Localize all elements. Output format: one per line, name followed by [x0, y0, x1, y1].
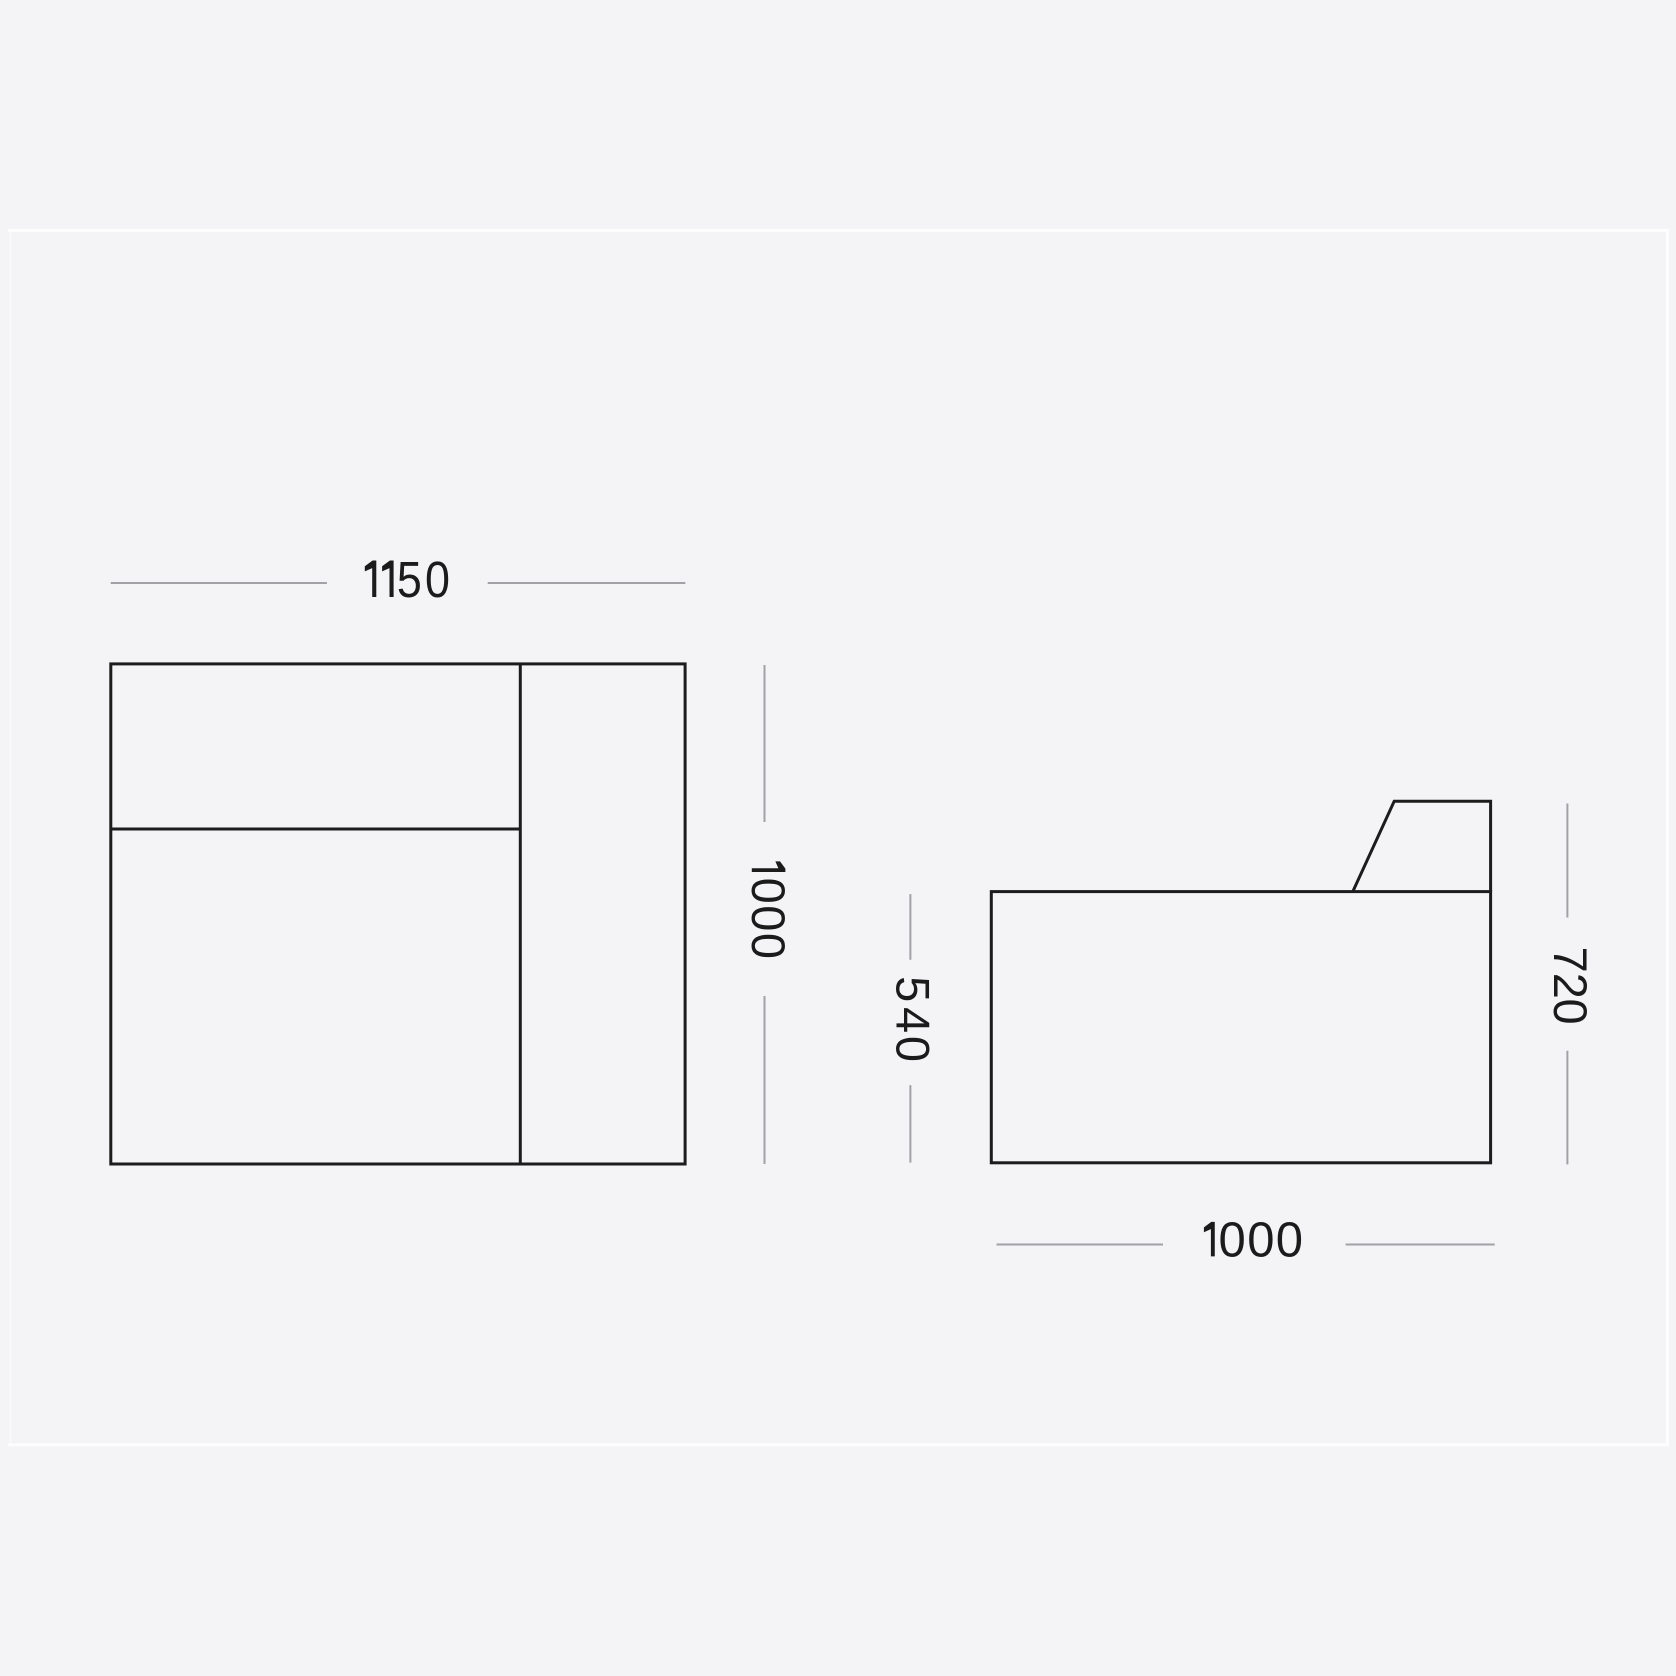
svg-text:4: 4 [886, 1007, 939, 1033]
svg-text:0: 0 [742, 933, 795, 959]
svg-text:0: 0 [742, 878, 795, 904]
svg-text:0: 0 [886, 1036, 939, 1062]
svg-text:2: 2 [1544, 973, 1597, 999]
svg-text:0: 0 [1218, 1213, 1245, 1267]
svg-text:7: 7 [1544, 947, 1597, 973]
svg-text:0: 0 [1247, 1213, 1274, 1267]
svg-text:5: 5 [886, 976, 939, 1002]
svg-text:0: 0 [425, 552, 450, 608]
svg-text:0: 0 [1544, 999, 1597, 1025]
svg-text:0: 0 [742, 905, 795, 931]
svg-text:0: 0 [1276, 1213, 1303, 1267]
svg-text:5: 5 [397, 552, 422, 608]
